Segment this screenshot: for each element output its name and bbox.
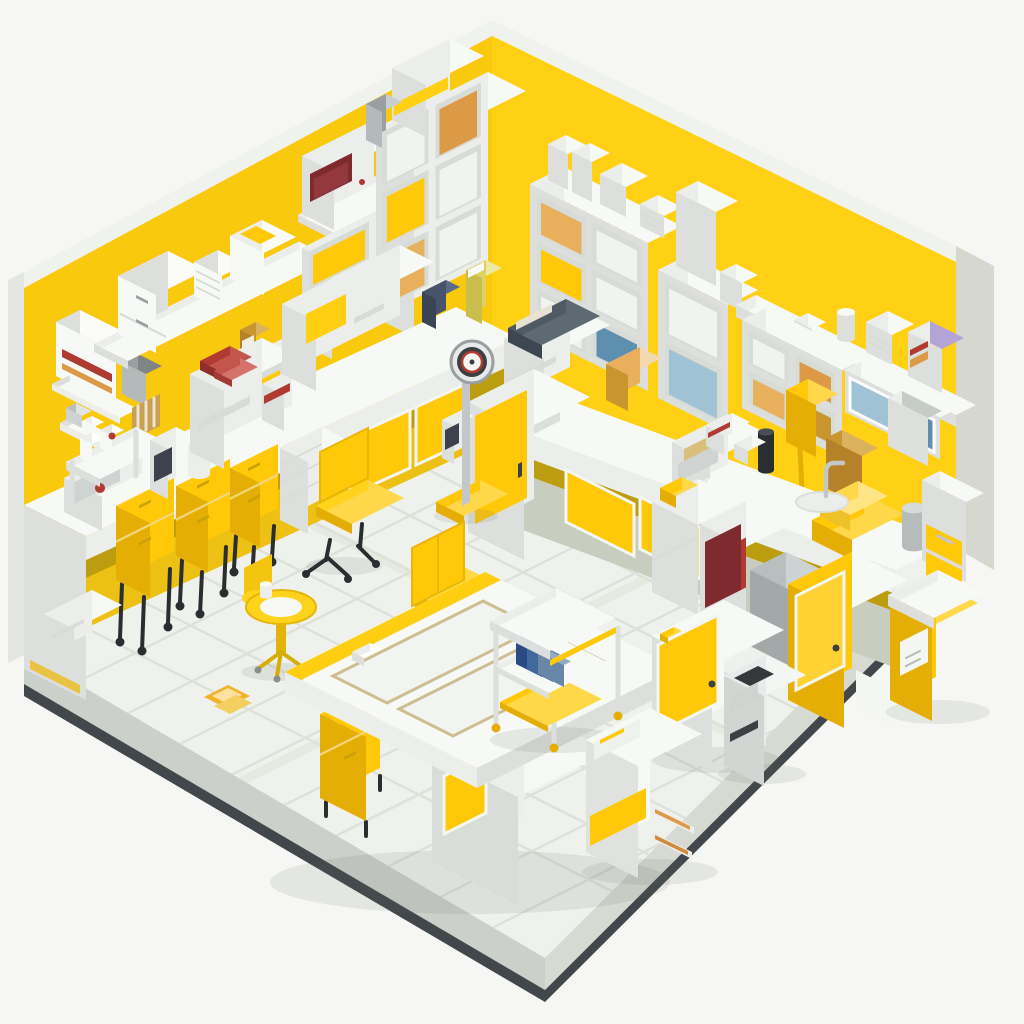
board-canister-top bbox=[837, 308, 855, 316]
yellow-cart-pedestal-3-leg bbox=[272, 526, 274, 558]
yellow-door-handle bbox=[833, 645, 840, 652]
table-top-inner bbox=[260, 597, 302, 617]
scene-canvas bbox=[0, 0, 1024, 1024]
black-canister bbox=[758, 428, 774, 473]
white-drawer-pedestal-right-face bbox=[280, 448, 308, 534]
black-canister-bot bbox=[758, 466, 774, 473]
pendant-stem bbox=[800, 448, 802, 492]
analyzer-bottle-cap bbox=[109, 433, 116, 440]
yellow-cart-pedestal-2-caster bbox=[176, 602, 185, 611]
yellow-cart-pedestal-3-caster bbox=[230, 568, 239, 577]
chair1-caster bbox=[372, 560, 380, 568]
yellow-cart-pedestal-1-caster bbox=[138, 647, 147, 656]
chair1-caster bbox=[302, 570, 310, 578]
table-caster bbox=[255, 667, 262, 674]
yellow-cart-pedestal-2-leg bbox=[180, 560, 182, 602]
scale-dial-center bbox=[470, 360, 475, 365]
yellow-cart-pedestal-2-leg bbox=[224, 547, 226, 589]
yellow-cart-pedestal-2-leg bbox=[200, 572, 202, 614]
tall-cabinet-handle bbox=[518, 462, 522, 478]
yellow-cart-pedestal-2-caster bbox=[196, 610, 205, 619]
striped-canister-right-face bbox=[466, 270, 482, 324]
chair1-caster bbox=[344, 575, 352, 583]
yellow-cart-pedestal-3-leg bbox=[234, 536, 236, 568]
floor-cab-handle bbox=[709, 681, 716, 688]
yellow-cart-pedestal-1-caster bbox=[164, 623, 173, 632]
cart-caster bbox=[550, 744, 559, 753]
table-caster bbox=[274, 676, 281, 683]
white-jar-bot bbox=[188, 469, 210, 479]
chair1-strut bbox=[360, 524, 362, 548]
washer-red-accent bbox=[741, 538, 746, 591]
yellow-cart-pedestal-1-leg bbox=[142, 597, 144, 651]
yellow-storage-box bbox=[886, 570, 990, 724]
microwave-button bbox=[359, 179, 365, 185]
board-canister-bot bbox=[837, 334, 855, 342]
yellow-cart-pedestal-1-leg bbox=[120, 584, 122, 638]
white-mug-top bbox=[260, 581, 272, 586]
isometric-room-illustration: Isometric 3D illustration of a yellow an… bbox=[0, 0, 1024, 1024]
copier-shadow bbox=[582, 859, 718, 885]
white-mug bbox=[260, 581, 272, 598]
yellow-cart-pedestal-1-leg bbox=[168, 569, 170, 623]
sink-basin bbox=[796, 492, 848, 512]
cart-caster bbox=[614, 712, 623, 721]
yellow-cart-pedestal-2-caster bbox=[220, 589, 229, 598]
yellow-cabinet-side-label bbox=[856, 670, 892, 728]
white-mug-bot bbox=[260, 593, 272, 598]
yellow-cart-pedestal-1-caster bbox=[116, 638, 125, 647]
black-canister-body bbox=[758, 432, 774, 470]
cart-caster bbox=[492, 724, 501, 733]
black-canister-top bbox=[758, 428, 774, 435]
board-canister bbox=[837, 308, 855, 342]
left-wall-outer-edge bbox=[8, 272, 24, 663]
